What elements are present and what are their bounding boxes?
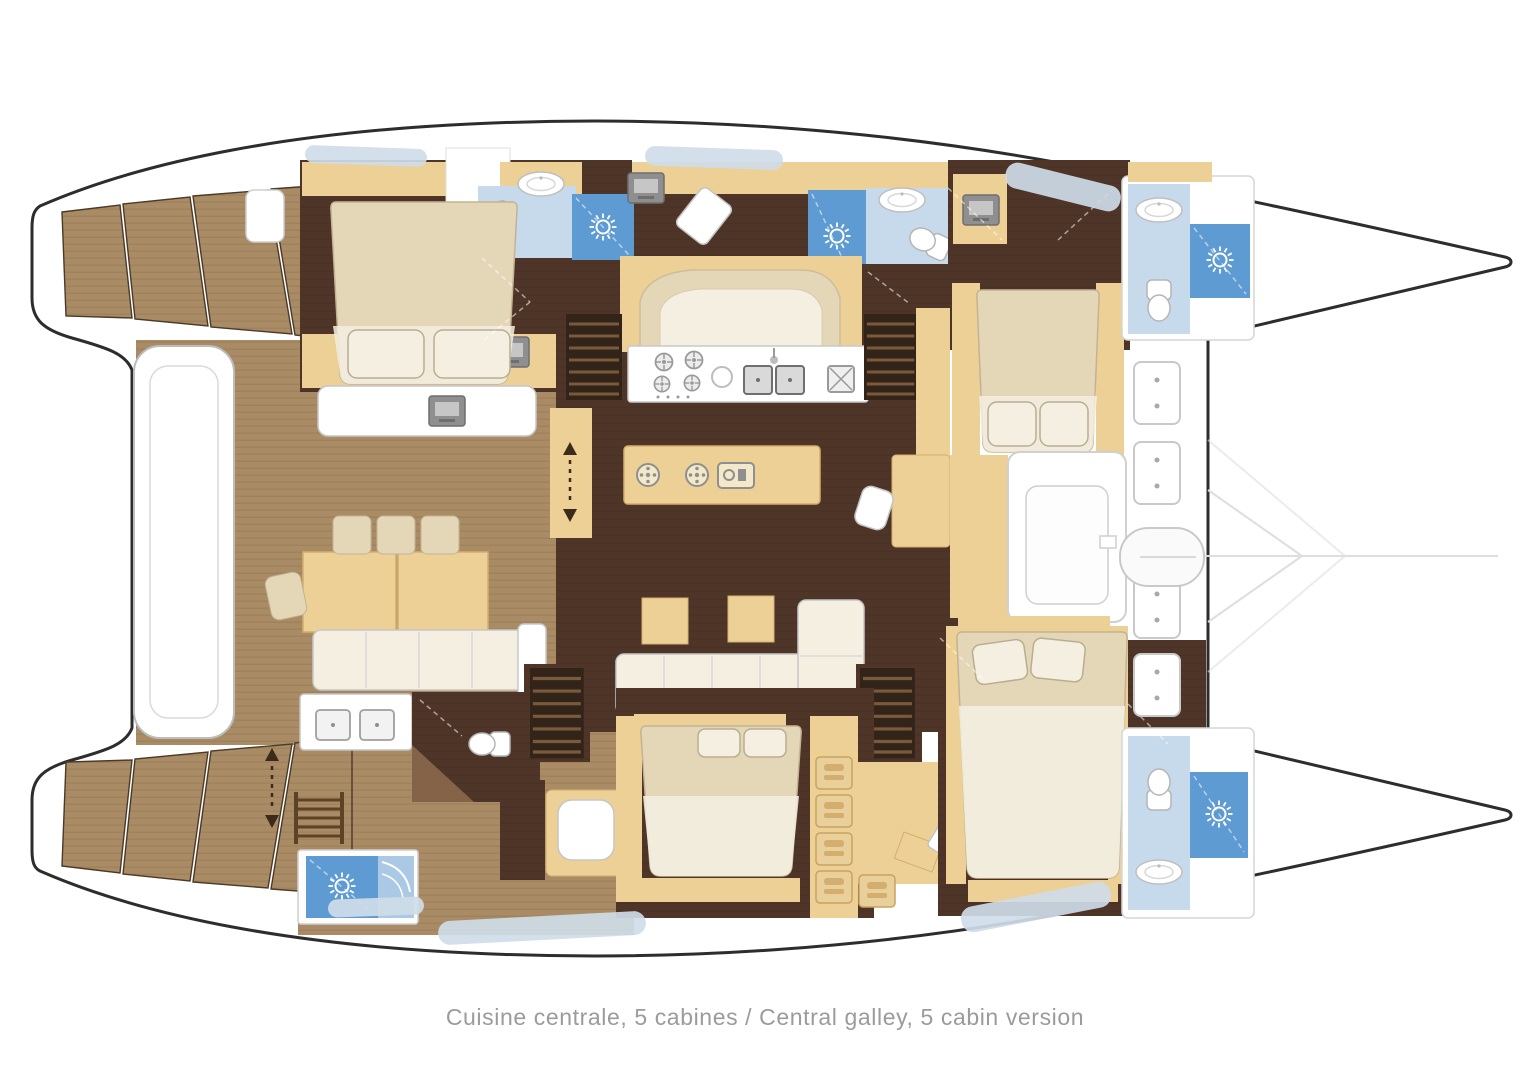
- drawer-icon: [816, 833, 852, 865]
- toilet-icon: [469, 732, 510, 756]
- windlass-icon: [1120, 528, 1204, 586]
- pillow: [1040, 402, 1088, 446]
- forward-settee: [620, 256, 862, 352]
- forepeak-seat: [1008, 452, 1126, 622]
- pillow: [348, 330, 424, 378]
- stairs-starboard-aft: [530, 668, 584, 758]
- aft-cockpit-bench: [134, 346, 234, 738]
- bed-starboard-forward: [957, 632, 1127, 878]
- pillow: [744, 729, 786, 757]
- yacht-floorplan: Cuisine centrale, 5 cabines / Central ga…: [0, 0, 1530, 1080]
- bed-port-forward: [977, 290, 1099, 452]
- nav-cabinet: [916, 308, 950, 458]
- toilet-icon: [1147, 769, 1171, 810]
- ladder-icon: [296, 792, 342, 844]
- vanity-seat: [318, 386, 536, 436]
- basin-icon: [1136, 860, 1182, 884]
- cockpit-bench: [313, 630, 527, 690]
- toilet-icon: [1147, 280, 1171, 321]
- deck-locker: [246, 190, 284, 242]
- boat-floorplan-svg: [0, 0, 1530, 1080]
- pillow: [971, 639, 1028, 686]
- deck-hatch-icon: [1134, 442, 1180, 504]
- stool: [333, 516, 371, 554]
- ottoman: [728, 596, 774, 642]
- deck-hatch-icon: [1134, 654, 1180, 716]
- stairs-port-aft: [566, 314, 622, 400]
- foredeck-cabinet: [950, 455, 1008, 620]
- bed-starboard-mid: [641, 726, 801, 876]
- basin-icon: [1136, 198, 1182, 222]
- galley-counter: [628, 346, 868, 402]
- caption: Cuisine centrale, 5 cabines / Central ga…: [0, 1004, 1530, 1031]
- drawer-icon: [859, 875, 895, 907]
- drawer-icon: [816, 871, 852, 903]
- pillow: [1030, 637, 1086, 682]
- basin-icon: [879, 188, 925, 212]
- bow-bathroom-starboard: [1122, 704, 1254, 918]
- galley-island: [624, 446, 820, 504]
- drawer-icon: [816, 757, 852, 789]
- pillow: [698, 729, 740, 757]
- stairs-port-forward: [864, 314, 917, 400]
- deck-hatch-icon: [1134, 362, 1180, 424]
- ottoman: [642, 598, 688, 644]
- starboard-mid-cabin: [616, 688, 874, 918]
- tv-icon: [429, 396, 465, 426]
- bow-bathroom-port: [1122, 162, 1254, 340]
- cockpit-table: [303, 552, 396, 632]
- stool: [421, 516, 459, 554]
- cockpit-table: [398, 552, 488, 632]
- tv-icon: [628, 173, 664, 203]
- bed-port-aft: [331, 202, 517, 384]
- pillow: [434, 330, 510, 378]
- island-ring-icon: [686, 464, 708, 486]
- desk-seat: [558, 800, 614, 860]
- stool: [377, 516, 415, 554]
- drawer-icon: [816, 795, 852, 827]
- pillow: [988, 402, 1036, 446]
- basin-icon: [518, 172, 564, 196]
- chart-desk: [892, 455, 950, 547]
- island-ring-icon: [637, 464, 659, 486]
